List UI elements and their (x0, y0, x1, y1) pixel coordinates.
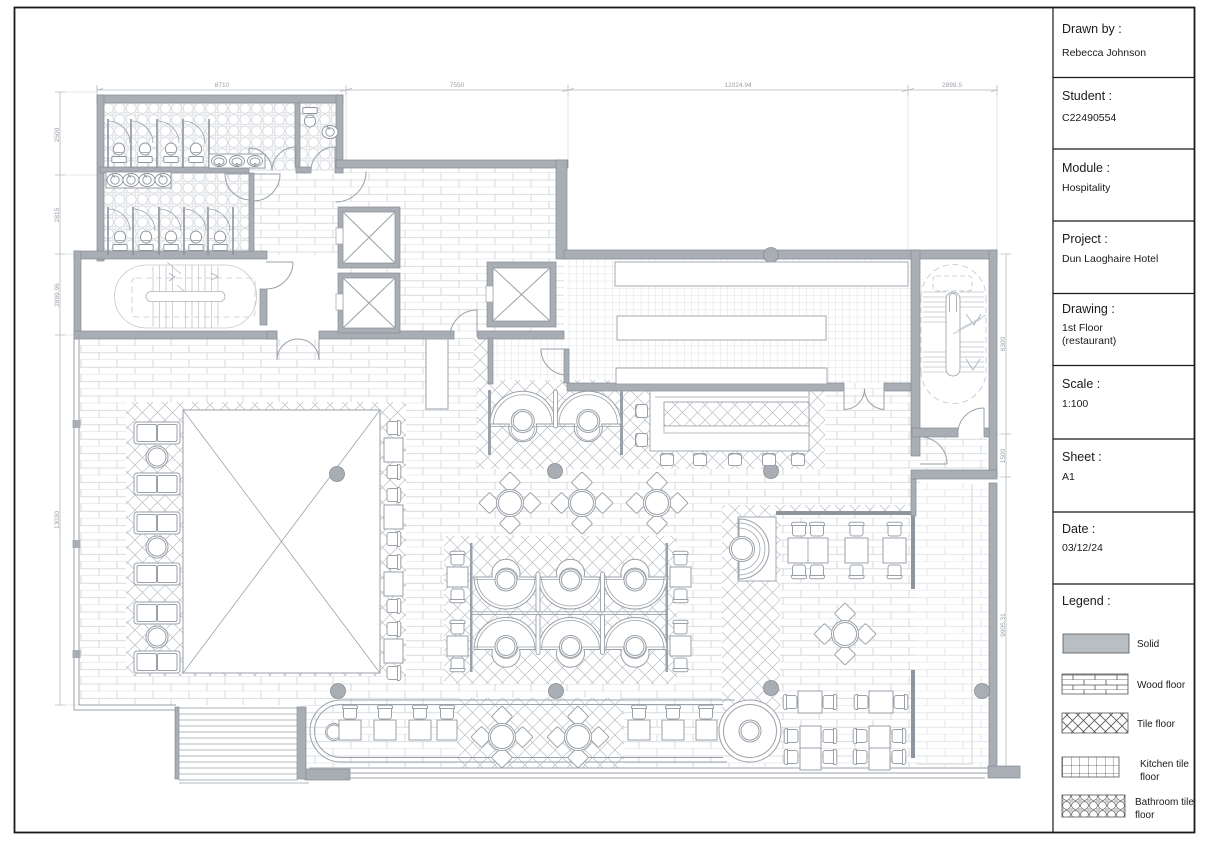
svg-text:9905.31: 9905.31 (1000, 613, 1007, 637)
svg-text:(restaurant): (restaurant) (1062, 335, 1116, 347)
svg-text:Drawn by :: Drawn by : (1062, 22, 1122, 36)
svg-text:2500: 2500 (54, 127, 61, 142)
svg-text:Scale :: Scale : (1062, 377, 1100, 391)
svg-text:floor: floor (1135, 810, 1155, 821)
svg-text:1:100: 1:100 (1062, 398, 1088, 410)
svg-text:7550: 7550 (450, 82, 465, 89)
svg-text:Tile floor: Tile floor (1137, 719, 1176, 730)
svg-text:6300: 6300 (1000, 336, 1007, 351)
svg-text:2899.96: 2899.96 (54, 283, 61, 307)
svg-text:Wood floor: Wood floor (1137, 680, 1186, 691)
svg-text:Rebecca Johnson: Rebecca Johnson (1062, 47, 1146, 59)
svg-text:03/12/24: 03/12/24 (1062, 542, 1103, 554)
svg-text:13030: 13030 (54, 511, 61, 529)
svg-text:Module :: Module : (1062, 161, 1110, 175)
svg-text:C22490554: C22490554 (1062, 112, 1116, 124)
svg-text:2815: 2815 (54, 207, 61, 222)
svg-text:Hospitality: Hospitality (1062, 182, 1111, 194)
svg-text:Bathroom tile: Bathroom tile (1135, 797, 1194, 808)
svg-text:8710: 8710 (215, 82, 230, 89)
svg-text:1500: 1500 (1000, 448, 1007, 463)
svg-text:Solid: Solid (1137, 639, 1159, 650)
svg-text:Sheet :: Sheet : (1062, 450, 1102, 464)
svg-text:A1: A1 (1062, 471, 1075, 483)
svg-text:Date :: Date : (1062, 522, 1095, 536)
svg-text:Dun Laoghaire Hotel: Dun Laoghaire Hotel (1062, 253, 1158, 265)
svg-text:2899.5: 2899.5 (942, 82, 962, 89)
svg-text:Student :: Student : (1062, 89, 1112, 103)
svg-text:floor: floor (1140, 772, 1160, 783)
svg-text:Kitchen tile: Kitchen tile (1140, 759, 1189, 770)
svg-text:Project :: Project : (1062, 232, 1108, 246)
svg-text:Legend :: Legend : (1062, 594, 1111, 608)
svg-text:12024.94: 12024.94 (724, 82, 751, 89)
svg-text:1st Floor: 1st Floor (1062, 322, 1103, 334)
svg-text:Drawing :: Drawing : (1062, 302, 1115, 316)
